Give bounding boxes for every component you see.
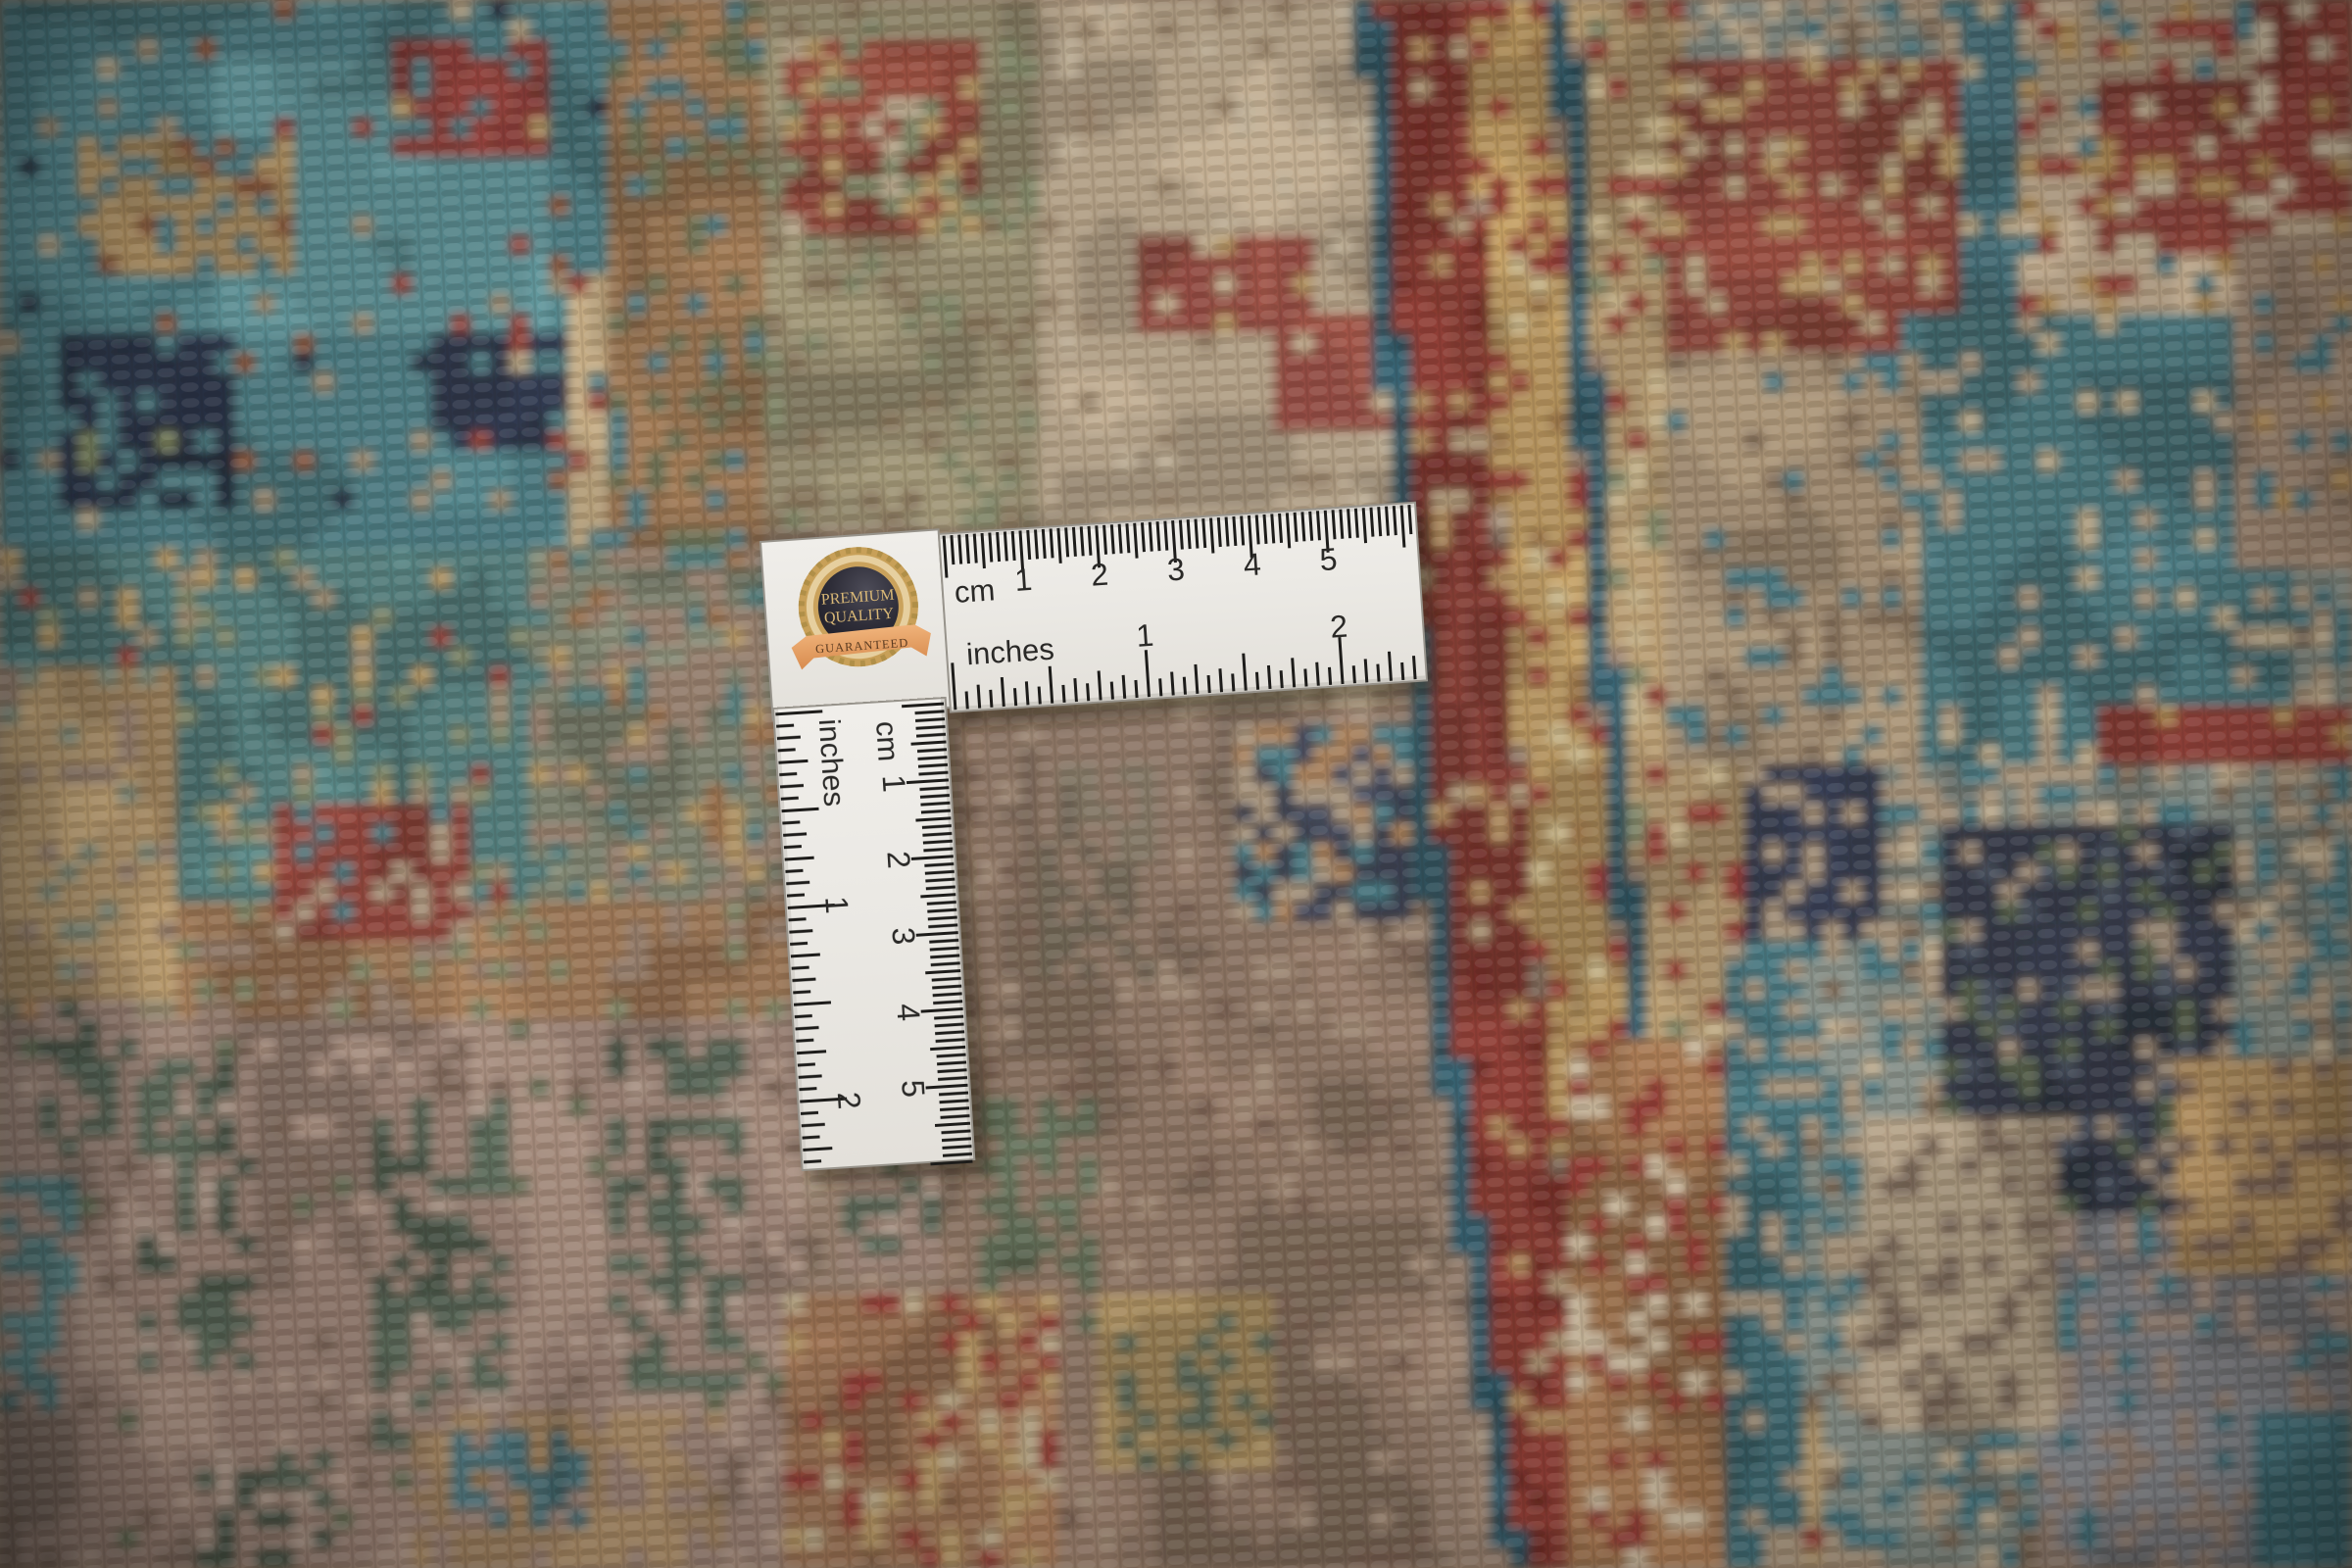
svg-text:2: 2 xyxy=(831,1091,867,1110)
svg-text:1: 1 xyxy=(876,773,912,793)
svg-text:cm: cm xyxy=(954,572,997,610)
svg-text:5: 5 xyxy=(895,1079,931,1099)
svg-text:1: 1 xyxy=(1013,562,1033,598)
svg-text:2: 2 xyxy=(1329,609,1348,645)
svg-text:2: 2 xyxy=(1090,557,1109,593)
svg-text:4: 4 xyxy=(1243,546,1262,582)
svg-text:inches: inches xyxy=(965,632,1055,672)
svg-text:4: 4 xyxy=(890,1003,926,1022)
svg-text:3: 3 xyxy=(885,926,921,946)
svg-text:3: 3 xyxy=(1166,551,1186,587)
svg-text:inches: inches xyxy=(812,717,853,808)
svg-text:5: 5 xyxy=(1319,541,1339,577)
svg-text:1: 1 xyxy=(818,895,855,914)
svg-text:2: 2 xyxy=(880,850,916,869)
svg-text:1: 1 xyxy=(1135,617,1154,654)
svg-text:cm: cm xyxy=(869,720,906,762)
